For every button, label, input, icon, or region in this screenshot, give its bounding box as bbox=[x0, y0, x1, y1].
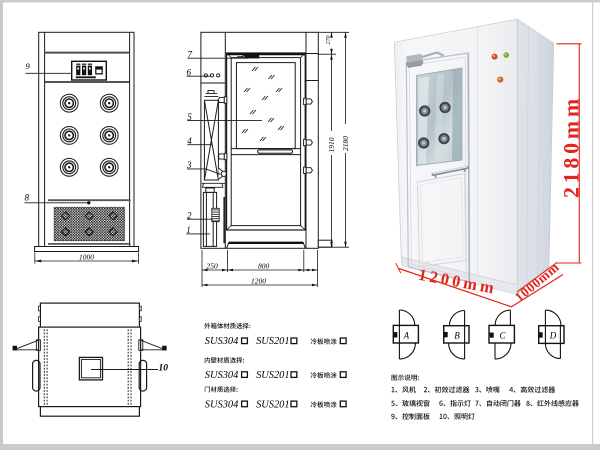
svg-text:8: 8 bbox=[25, 193, 30, 203]
svg-text:C: C bbox=[500, 331, 507, 341]
svg-text:SUS304: SUS304 bbox=[205, 370, 238, 381]
svg-text:2180: 2180 bbox=[341, 136, 350, 151]
svg-text:800: 800 bbox=[258, 261, 270, 270]
svg-text:SUS201: SUS201 bbox=[256, 399, 289, 410]
svg-text:SUS304: SUS304 bbox=[205, 399, 238, 410]
svg-text:10: 10 bbox=[159, 364, 169, 374]
svg-text:D: D bbox=[549, 331, 557, 341]
svg-text:1000: 1000 bbox=[79, 253, 94, 262]
svg-text:SUS201: SUS201 bbox=[256, 370, 289, 381]
svg-text:270: 270 bbox=[326, 36, 332, 45]
svg-text:SUS304: SUS304 bbox=[205, 336, 238, 347]
svg-text:B: B bbox=[454, 331, 460, 341]
svg-text:1910: 1910 bbox=[327, 137, 336, 152]
svg-text:2180mm: 2180mm bbox=[558, 95, 583, 198]
svg-text:1200: 1200 bbox=[251, 276, 266, 285]
svg-text:A: A bbox=[403, 331, 410, 341]
svg-text:250: 250 bbox=[207, 261, 219, 270]
svg-text:SUS201: SUS201 bbox=[256, 336, 289, 347]
